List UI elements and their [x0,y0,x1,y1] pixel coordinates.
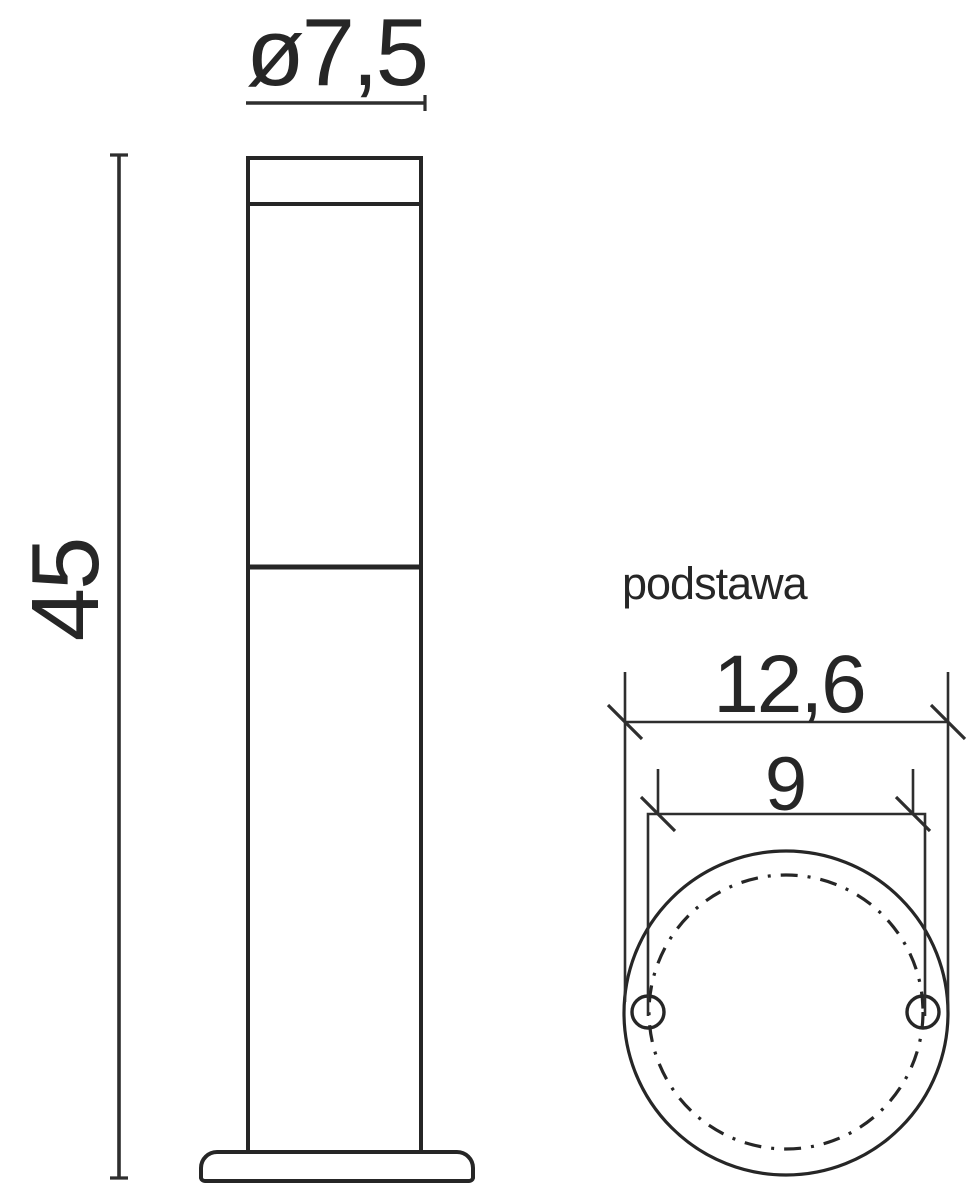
hole-spacing-dimension-line [648,814,925,1016]
plate-diameter-dimension-label: 12,6 [713,644,865,726]
post-tube-outline [248,158,421,1152]
base-outer-circle [624,851,948,1175]
technical-drawing: ø7,5 45 podstawa 12,6 9 [0,0,970,1202]
base-plate-outline [201,1152,473,1181]
diameter-dimension-label: ø7,5 [246,5,426,101]
height-dimension-label: 45 [18,539,114,642]
bolt-circle-dashed [649,875,923,1149]
hole-spacing-dimension-label: 9 [765,747,807,823]
base-view-caption: podstawa [622,561,807,606]
drawing-linework [0,0,970,1202]
